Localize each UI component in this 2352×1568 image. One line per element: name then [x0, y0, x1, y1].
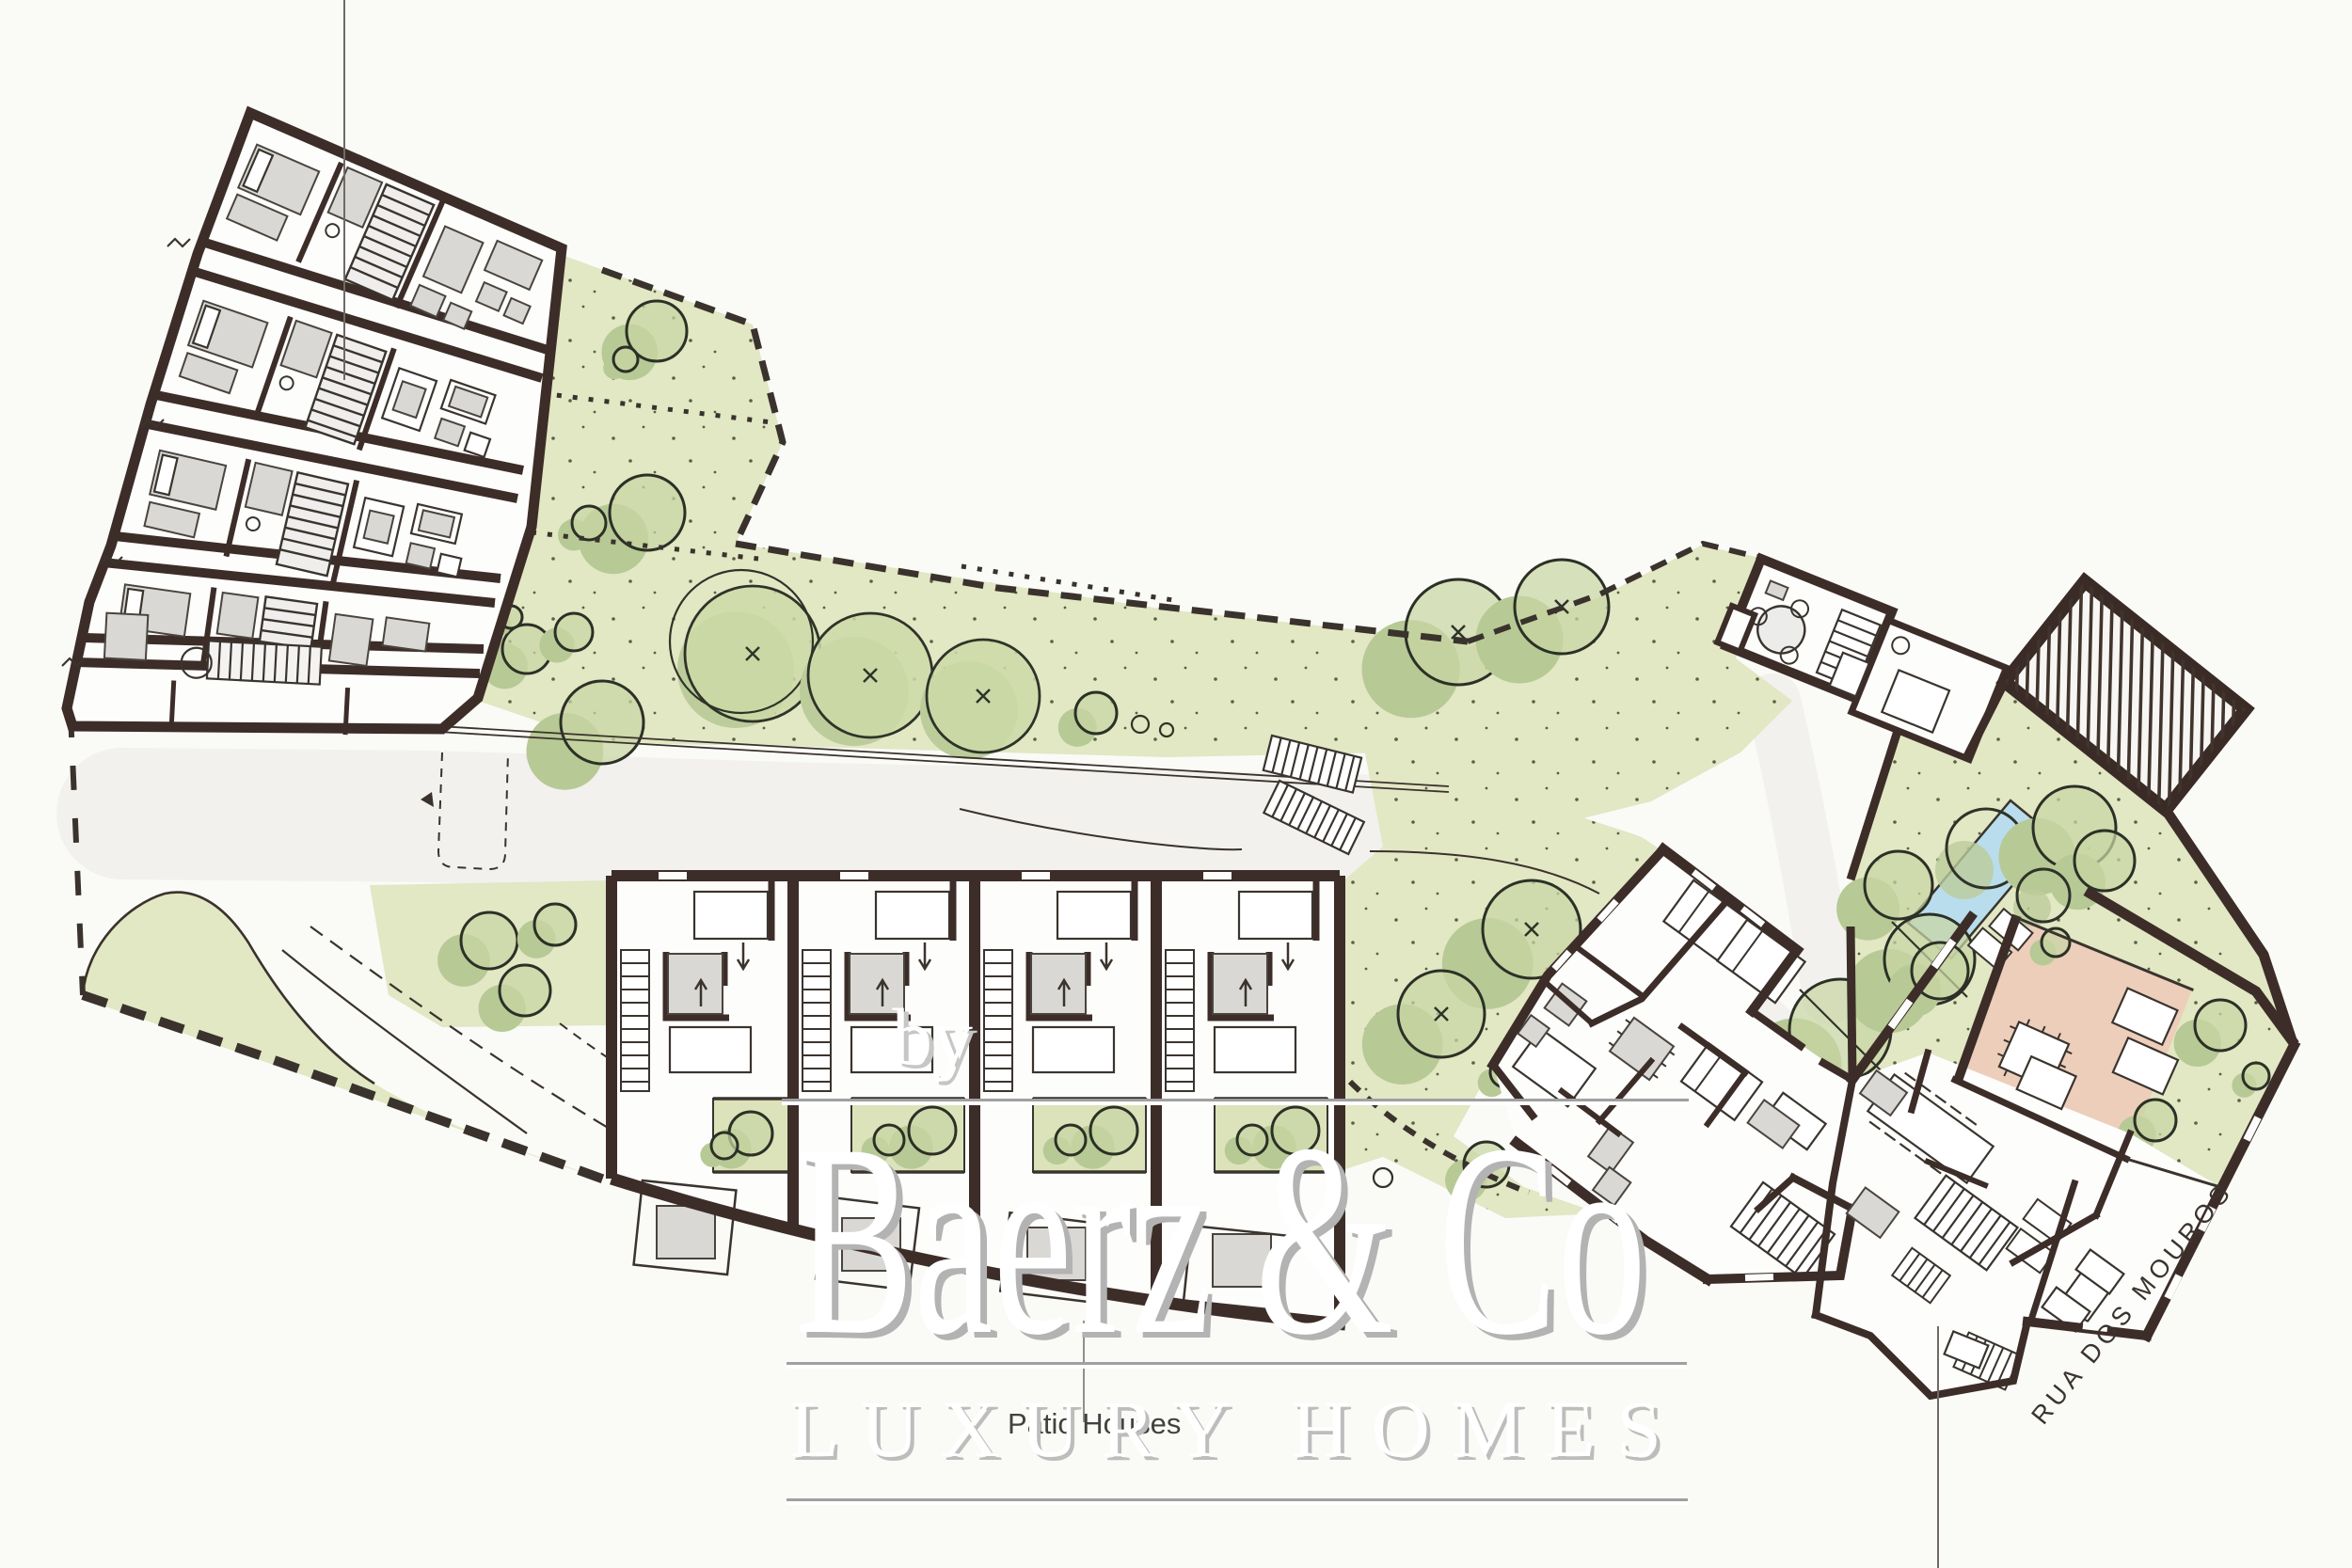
svg-text:by: by — [892, 991, 973, 1082]
svg-text:LUXURY HOMES: LUXURY HOMES — [789, 1384, 1688, 1474]
svg-text:Baerz & Co: Baerz & Co — [795, 1088, 1646, 1392]
